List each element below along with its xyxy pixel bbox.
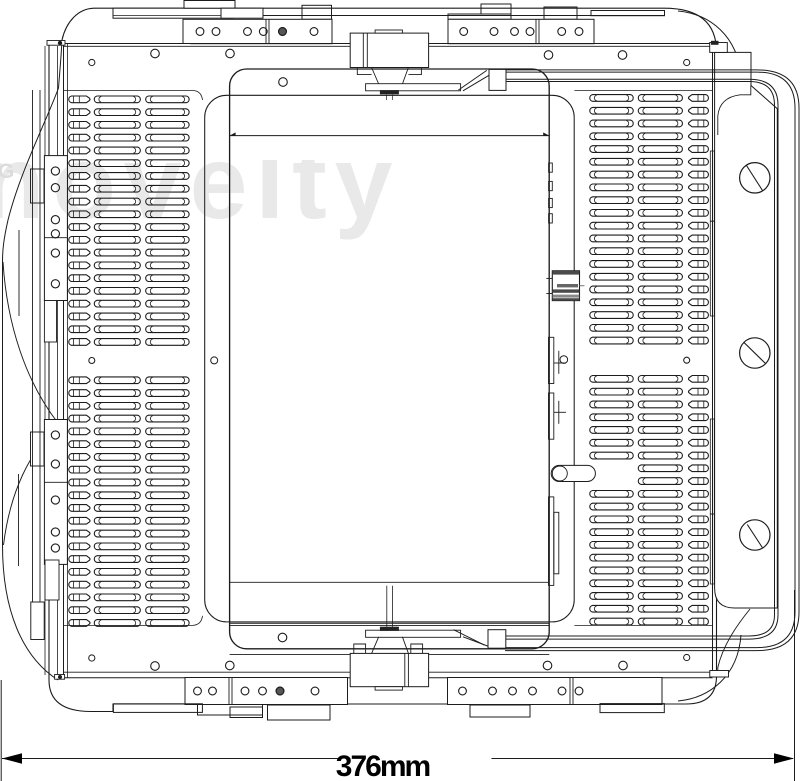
svg-text:376mm: 376mm [336, 750, 430, 781]
svg-text:novelty: novelty [0, 125, 400, 241]
svg-text:G: G [0, 160, 14, 183]
